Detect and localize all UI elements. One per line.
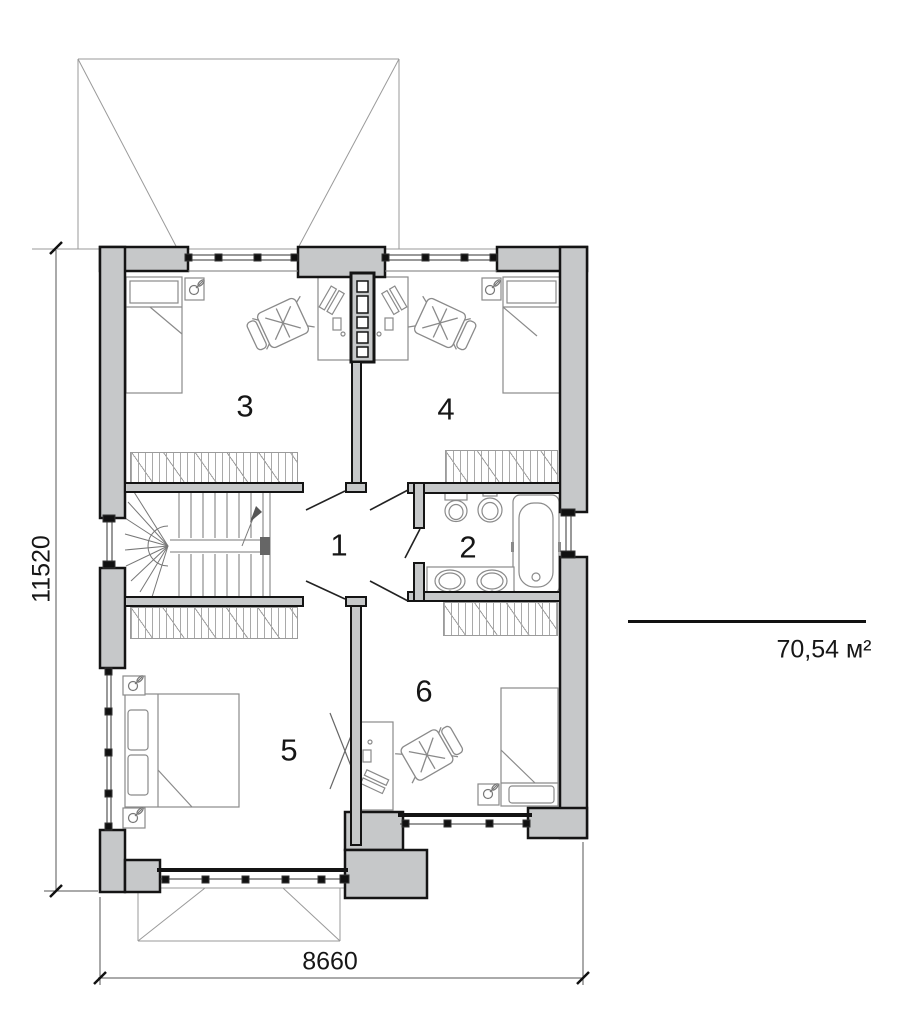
office-chair-icon [394,722,466,785]
pillow [507,281,556,303]
room6-furniture [361,688,558,810]
roof-outline-top [32,59,560,249]
door-swings [306,490,420,601]
room5-furniture [123,675,360,828]
room3-furniture [126,277,352,393]
room-label-1: 1 [330,530,347,561]
keyboard [385,318,393,330]
pillow [128,755,148,795]
room-label-3: 3 [236,391,253,422]
dimension-text-horizontal: 8660 [302,950,358,975]
office-chair-icon [244,294,315,354]
floor-plan-drawing [0,0,909,1024]
area-divider-line [628,620,866,623]
nightstand [185,278,204,300]
keyboard [363,750,371,762]
mouse [377,332,381,336]
pillow [509,786,554,803]
area-label: 70,54 м² [776,638,871,663]
mouse [341,332,345,336]
dimension-text-vertical: 11520 [30,535,55,603]
floor-plan-page: 1 2 3 4 5 6 11520 8660 70,54 м² [0,0,909,1024]
room4-furniture [374,277,560,393]
mouse [368,740,372,744]
room-label-4: 4 [437,394,454,425]
roof-outline-bottom [138,888,352,941]
bathroom-fixtures [427,489,561,598]
winder-staircase [125,492,270,597]
desk [361,722,393,810]
pillow [128,710,148,750]
bathtub-drain [532,573,540,581]
nightstand [478,784,499,805]
room-label-6: 6 [415,676,432,707]
nightstand [123,676,145,695]
room-label-2: 2 [459,532,476,563]
room-label-5: 5 [280,735,297,766]
keyboard [333,318,341,330]
office-chair-icon [407,294,478,354]
pillow [130,281,178,303]
